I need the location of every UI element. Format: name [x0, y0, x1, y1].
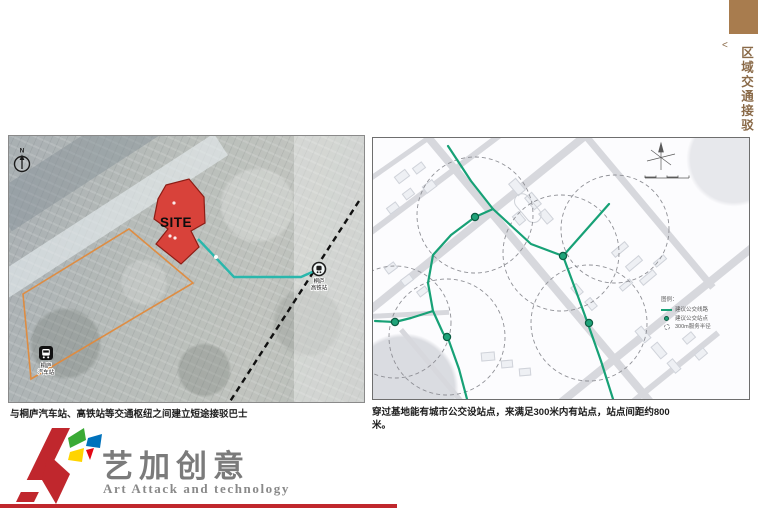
stop-dot-symbol	[664, 316, 669, 321]
svg-text:N: N	[20, 148, 25, 155]
bus-stop-dots	[391, 213, 592, 340]
route-node	[214, 255, 218, 259]
bus-plan-map-panel: 图例： 建议公交线路 建议公交站点 300m服务半径	[372, 137, 750, 400]
logo-name-en: Art Attack and technology	[103, 481, 290, 497]
legend-item-radius: 300m服务半径	[661, 323, 711, 331]
logo-pinwheel-icon	[68, 428, 102, 462]
bus-station-label-2: 汽车站	[38, 368, 55, 376]
service-radius-circles	[373, 157, 669, 395]
map-legend: 图例： 建议公交线路 建议公交站点 300m服务半径	[661, 296, 711, 331]
site-label: SITE	[160, 215, 192, 230]
page-title: 区域交通接驳	[737, 46, 756, 133]
section-tab-bar	[729, 0, 758, 34]
company-logo-mark	[12, 424, 104, 506]
legend-title: 图例：	[661, 296, 711, 304]
compass-rose-icon	[647, 143, 675, 170]
route-line-symbol	[661, 309, 672, 311]
bus-route-lines	[375, 146, 613, 399]
bus-plan-annotations	[373, 138, 750, 400]
site-dot	[168, 234, 171, 237]
right-map-caption: 穿过基地能有城市公交设站点，来满足300米内有站点，站点间距约800米。	[372, 406, 674, 433]
site-dot	[173, 236, 176, 239]
left-map-caption: 与桐庐汽车站、高铁站等交通枢纽之间建立短途接驳巴士	[10, 408, 356, 421]
logo-a-notch	[12, 480, 46, 492]
railway-dashed-line	[229, 201, 359, 403]
slide-page: < 区域交通接驳 SITE N	[0, 0, 760, 509]
collapse-arrow-icon[interactable]: <	[722, 40, 728, 51]
logo-underline	[0, 504, 397, 508]
legend-item-stop: 建议公交站点	[661, 315, 711, 323]
scale-bar	[645, 176, 689, 179]
legend-label: 建议公交站点	[675, 315, 708, 323]
hsr-station-icon	[313, 263, 326, 276]
satellite-map-annotations: SITE N 桐庐 高铁站	[9, 136, 365, 403]
hsr-station-label-2: 高铁站	[311, 284, 328, 292]
legend-item-route: 建议公交线路	[661, 306, 711, 314]
site-dot	[172, 201, 175, 204]
radius-circle-symbol	[664, 324, 670, 330]
satellite-map-panel: SITE N 桐庐 高铁站	[8, 135, 365, 403]
north-compass-icon: N	[15, 148, 30, 172]
bus-station-label-1: 桐庐	[41, 362, 52, 370]
logo-name-cn: 艺加创意	[102, 441, 250, 486]
hsr-station-label-1: 桐庐	[314, 277, 325, 285]
legend-label: 建议公交线路	[675, 306, 708, 314]
bus-station-icon	[39, 346, 53, 360]
legend-label: 300m服务半径	[675, 323, 711, 331]
